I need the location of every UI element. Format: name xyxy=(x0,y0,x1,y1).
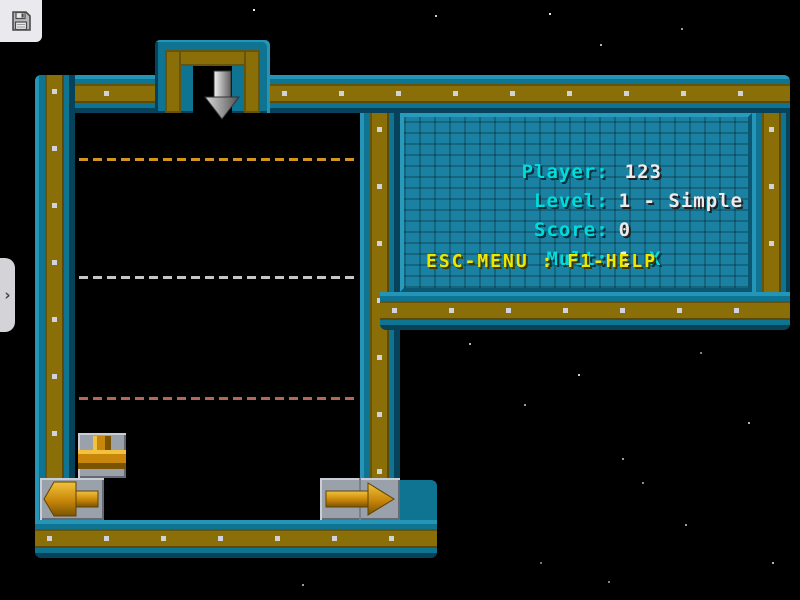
level-value: 1 - Simple xyxy=(619,190,743,212)
game-screen: Player:123 Level:1 - Simple Score:0 Mult… xyxy=(0,0,800,600)
score-label: Score: xyxy=(497,216,609,245)
hud-panel: Player:123 Level:1 - Simple Score:0 Mult… xyxy=(400,113,752,292)
tee-up-bar xyxy=(78,450,126,469)
guide-line-2 xyxy=(79,276,358,279)
pipe-tile-arrow-right[interactable] xyxy=(320,478,400,520)
wall-bottom xyxy=(35,520,437,558)
player-value: 123 xyxy=(625,161,662,183)
level-label: Level: xyxy=(497,187,609,216)
chute-olive-left xyxy=(165,50,181,113)
gold-arrow-right-icon xyxy=(320,478,400,520)
chevron-right-icon: › xyxy=(4,286,10,304)
save-icon xyxy=(9,9,33,33)
help-text: ESC-MENU : F1-HELP xyxy=(426,251,748,272)
hud-row-player: Player:123 xyxy=(422,129,748,158)
guide-line-3 xyxy=(79,397,358,400)
pipe-tile-tee-up[interactable] xyxy=(78,433,126,478)
gold-arrow-left-icon xyxy=(40,478,104,520)
score-value: 0 xyxy=(619,219,631,241)
pipe-tile-arrow-left[interactable] xyxy=(40,478,104,520)
panel-wall-right xyxy=(752,113,790,292)
save-button[interactable] xyxy=(0,0,42,42)
drop-arrow-icon xyxy=(202,70,242,122)
drawer-toggle[interactable]: › xyxy=(0,258,15,332)
wall-top-right xyxy=(270,75,790,113)
guide-line-1 xyxy=(79,158,358,161)
player-label: Player: xyxy=(497,158,609,187)
chute-olive-right xyxy=(244,50,260,113)
